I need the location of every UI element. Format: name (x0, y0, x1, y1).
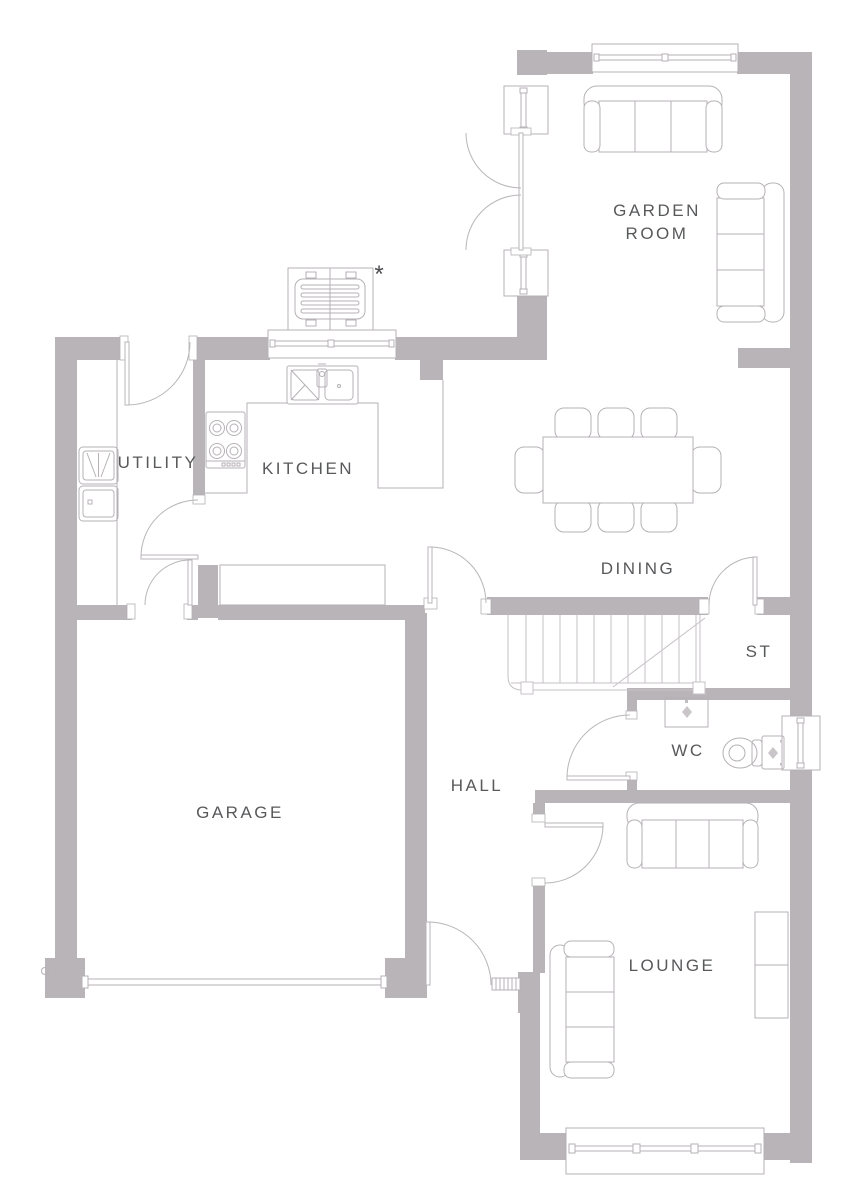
door-jamb (193, 495, 205, 504)
utility-sink-icon (79, 447, 118, 484)
exterior-details (42, 268, 521, 990)
window-wc (782, 716, 820, 770)
toilet-icon (723, 736, 784, 769)
window-garden-room-left-lower (504, 250, 548, 296)
door-hall-dining (428, 547, 486, 603)
door-wc (567, 715, 630, 780)
door-utility-lobby (141, 500, 198, 559)
wall-segment (45, 958, 85, 998)
wall-segment (763, 1133, 812, 1160)
door-front (426, 922, 491, 985)
wall-segment (518, 972, 540, 1013)
dining-chair (641, 500, 677, 532)
wall-segment (198, 565, 218, 618)
basin-icon (665, 698, 708, 727)
room-label-garden-room-line2: ROOM (626, 224, 689, 243)
sofa-icon (717, 183, 784, 322)
asterisk-annotation: * (374, 261, 383, 288)
dining-chair (515, 447, 545, 493)
wall-segment (395, 337, 547, 360)
wall-segment (533, 881, 545, 973)
wall-segment (738, 348, 790, 368)
wall-segment (790, 52, 812, 1163)
wall-segment (420, 360, 443, 380)
door-jamb (532, 878, 545, 886)
window-garden-room-top (592, 44, 738, 72)
hob-icon (206, 412, 245, 468)
floor-plan: GARDEN ROOM UTILITY KITCHEN DINING ST GA… (0, 0, 867, 1200)
media-unit (755, 912, 788, 1018)
dining-chair (598, 500, 634, 532)
door-french-garden-room (466, 133, 523, 250)
room-label-garden-room-line1: GARDEN (613, 201, 701, 220)
door-storage (709, 557, 757, 605)
stairs (508, 615, 705, 694)
room-label-utility: UTILITY (118, 453, 199, 472)
room-label-dining: DINING (601, 559, 676, 578)
dining-table (543, 437, 693, 503)
wall-segment (385, 958, 427, 998)
wall-segment (405, 613, 427, 967)
stairs-newel-post (521, 682, 533, 694)
door-lounge (545, 823, 603, 883)
dining-chair (598, 408, 634, 440)
room-label-storage: ST (746, 642, 773, 661)
dining-chair (555, 408, 591, 440)
room-label-garage: GARAGE (196, 803, 284, 822)
room-label-lounge: LOUNGE (629, 956, 716, 975)
wall-segment (520, 1133, 568, 1160)
front-door-threshold (492, 978, 520, 990)
kitchen-sink-icon (287, 364, 358, 404)
wall-segment (55, 337, 77, 958)
wall-segment (193, 360, 205, 502)
sofa-icon (584, 86, 722, 152)
dining-chair (691, 447, 721, 493)
window-lounge (566, 1128, 764, 1174)
door-jamb (699, 599, 709, 614)
door-lobby-garage (145, 560, 192, 605)
washing-machine-icon (79, 486, 118, 521)
door-jamb (127, 604, 135, 619)
wall-segment (517, 50, 547, 75)
stairs-direction-line (613, 618, 705, 687)
wall-segment (77, 605, 132, 620)
wall-segment (547, 52, 593, 74)
wall-segment (487, 597, 708, 615)
room-label-wc: WC (671, 741, 704, 760)
door-jamb (532, 814, 545, 822)
dining-chair (641, 408, 677, 440)
dining-chair (555, 500, 591, 532)
wall-segment (190, 337, 270, 360)
kitchen-fixtures (205, 364, 443, 605)
external-unit-icon (288, 268, 373, 330)
window-garden-room-left-upper (504, 86, 548, 134)
sofa-icon (550, 941, 614, 1078)
wall-segment (535, 790, 790, 803)
door-jamb (184, 604, 192, 619)
utility-fixtures (79, 360, 118, 605)
door-utility-external (125, 342, 190, 405)
room-label-hall: HALL (451, 776, 504, 795)
stairs-newel-post (693, 682, 705, 694)
window-kitchen (268, 330, 396, 358)
garage-door (82, 976, 387, 988)
wall-segment (218, 605, 425, 620)
sofa-icon (627, 803, 758, 868)
kitchen-peninsula-counter (220, 565, 385, 605)
room-label-kitchen: KITCHEN (262, 459, 354, 478)
